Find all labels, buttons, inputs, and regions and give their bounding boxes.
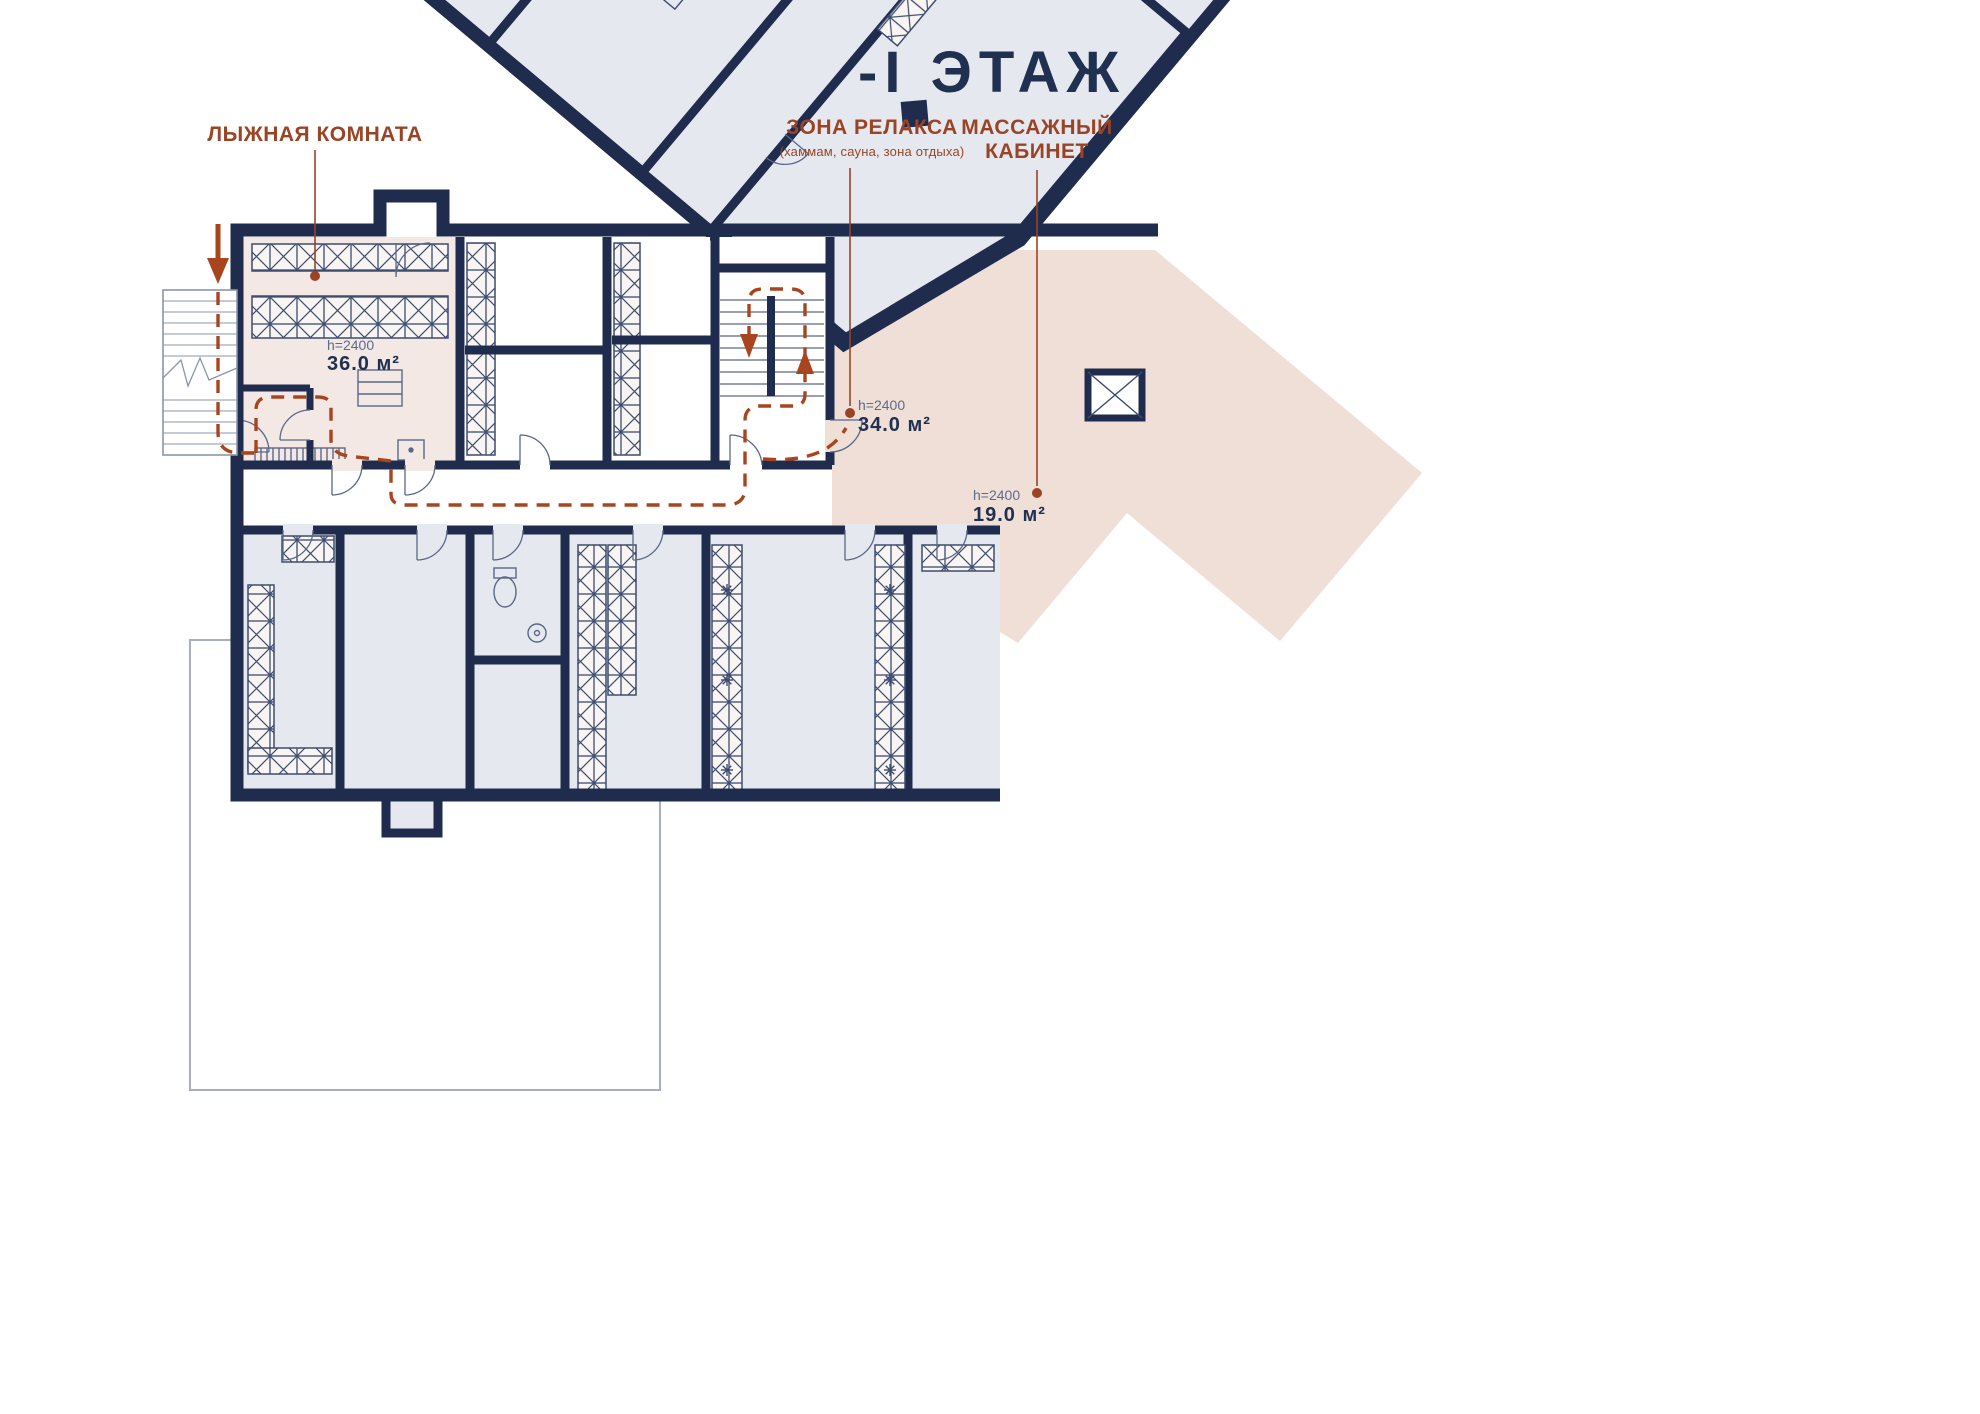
storage-rack-hatch [608, 545, 636, 695]
storage-rack-hatch [614, 243, 640, 455]
storage-rack-hatch [248, 748, 332, 774]
technical-room [715, 237, 830, 268]
relax-zone-label: ЗОНА РЕЛАКСА [786, 116, 958, 139]
storage-rack-hatch [922, 545, 994, 571]
ski-room-label: ЛЫЖНАЯ КОМНАТА [207, 123, 422, 146]
ski-rack-hatch [252, 296, 448, 338]
vent-shaft-box [1088, 372, 1142, 418]
stair-mid-wall [767, 296, 775, 396]
massage-room-height: h=2400 [973, 487, 1020, 503]
storage-rack-hatch [282, 536, 334, 562]
storage-rack-hatch [248, 585, 274, 770]
storage-rack-hatch [578, 545, 606, 793]
ski-room-height: h=2400 [327, 337, 374, 353]
page-title: -I ЭТАЖ [858, 40, 1126, 105]
relax-zone-area-value: 34.0 м² [858, 414, 931, 436]
ski-rack-hatch [252, 244, 448, 271]
leader-dot [845, 408, 855, 418]
vent-shaft-strip [712, 545, 742, 793]
relax-zone-height: h=2400 [858, 397, 905, 413]
exterior-staircase [163, 290, 237, 455]
massage-room-label-2: КАБИНЕТ [985, 140, 1089, 163]
floor-plan-page: DW DW [0, 0, 1980, 1414]
entry-arrow-icon [207, 258, 229, 284]
massage-room-label-1: МАССАЖНЫЙ [961, 115, 1112, 139]
leader-dot [1032, 488, 1042, 498]
leader-dot [310, 271, 320, 281]
ski-room-area: 36.0 м² [327, 353, 400, 375]
massage-room-area-value: 19.0 м² [973, 504, 1046, 526]
vent-shaft-strip [875, 545, 905, 793]
relax-zone-sublabel: (хаммам, сауна, зона отдыха) [780, 144, 965, 159]
floor-plan-drawing: DW DW [0, 0, 1980, 1414]
